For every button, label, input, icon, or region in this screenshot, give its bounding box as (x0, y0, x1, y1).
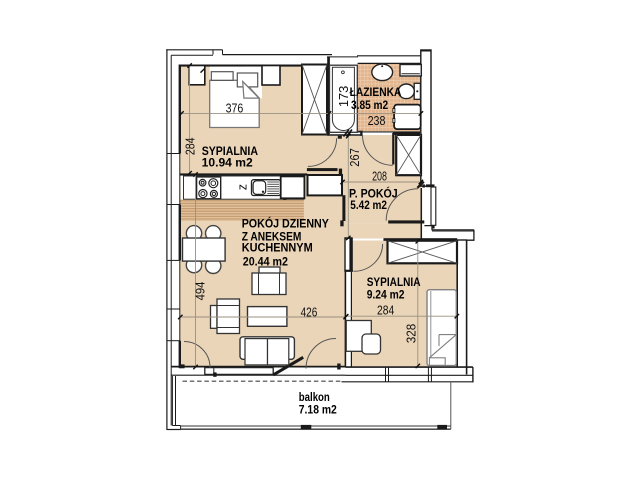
svg-text:9.24 m2: 9.24 m2 (367, 289, 405, 302)
svg-text:328: 328 (405, 324, 419, 343)
svg-text:POKÓJ DZIENNY: POKÓJ DZIENNY (242, 217, 329, 230)
svg-text:5.42 m2: 5.42 m2 (350, 199, 387, 212)
svg-text:7.18 m2: 7.18 m2 (299, 404, 337, 417)
svg-text:z: z (236, 184, 250, 190)
svg-text:208: 208 (372, 169, 387, 183)
svg-text:balkon: balkon (299, 391, 330, 404)
svg-text:KUCHENNYM: KUCHENNYM (242, 242, 313, 255)
svg-text:284: 284 (377, 303, 394, 317)
svg-text:494: 494 (194, 282, 208, 301)
svg-text:20.44 m2: 20.44 m2 (243, 255, 289, 268)
svg-text:238: 238 (368, 114, 386, 128)
svg-text:ŁAZIENKA: ŁAZIENKA (350, 86, 402, 99)
svg-text:173: 173 (337, 86, 351, 108)
svg-text:SYPIALNIA: SYPIALNIA (367, 276, 421, 289)
svg-text:426: 426 (301, 305, 318, 319)
svg-text:376: 376 (226, 102, 244, 116)
svg-text:267: 267 (348, 148, 362, 166)
svg-text:3.85 m2: 3.85 m2 (351, 99, 389, 112)
svg-text:284: 284 (183, 137, 197, 155)
svg-text:10.94 m2: 10.94 m2 (202, 157, 254, 170)
